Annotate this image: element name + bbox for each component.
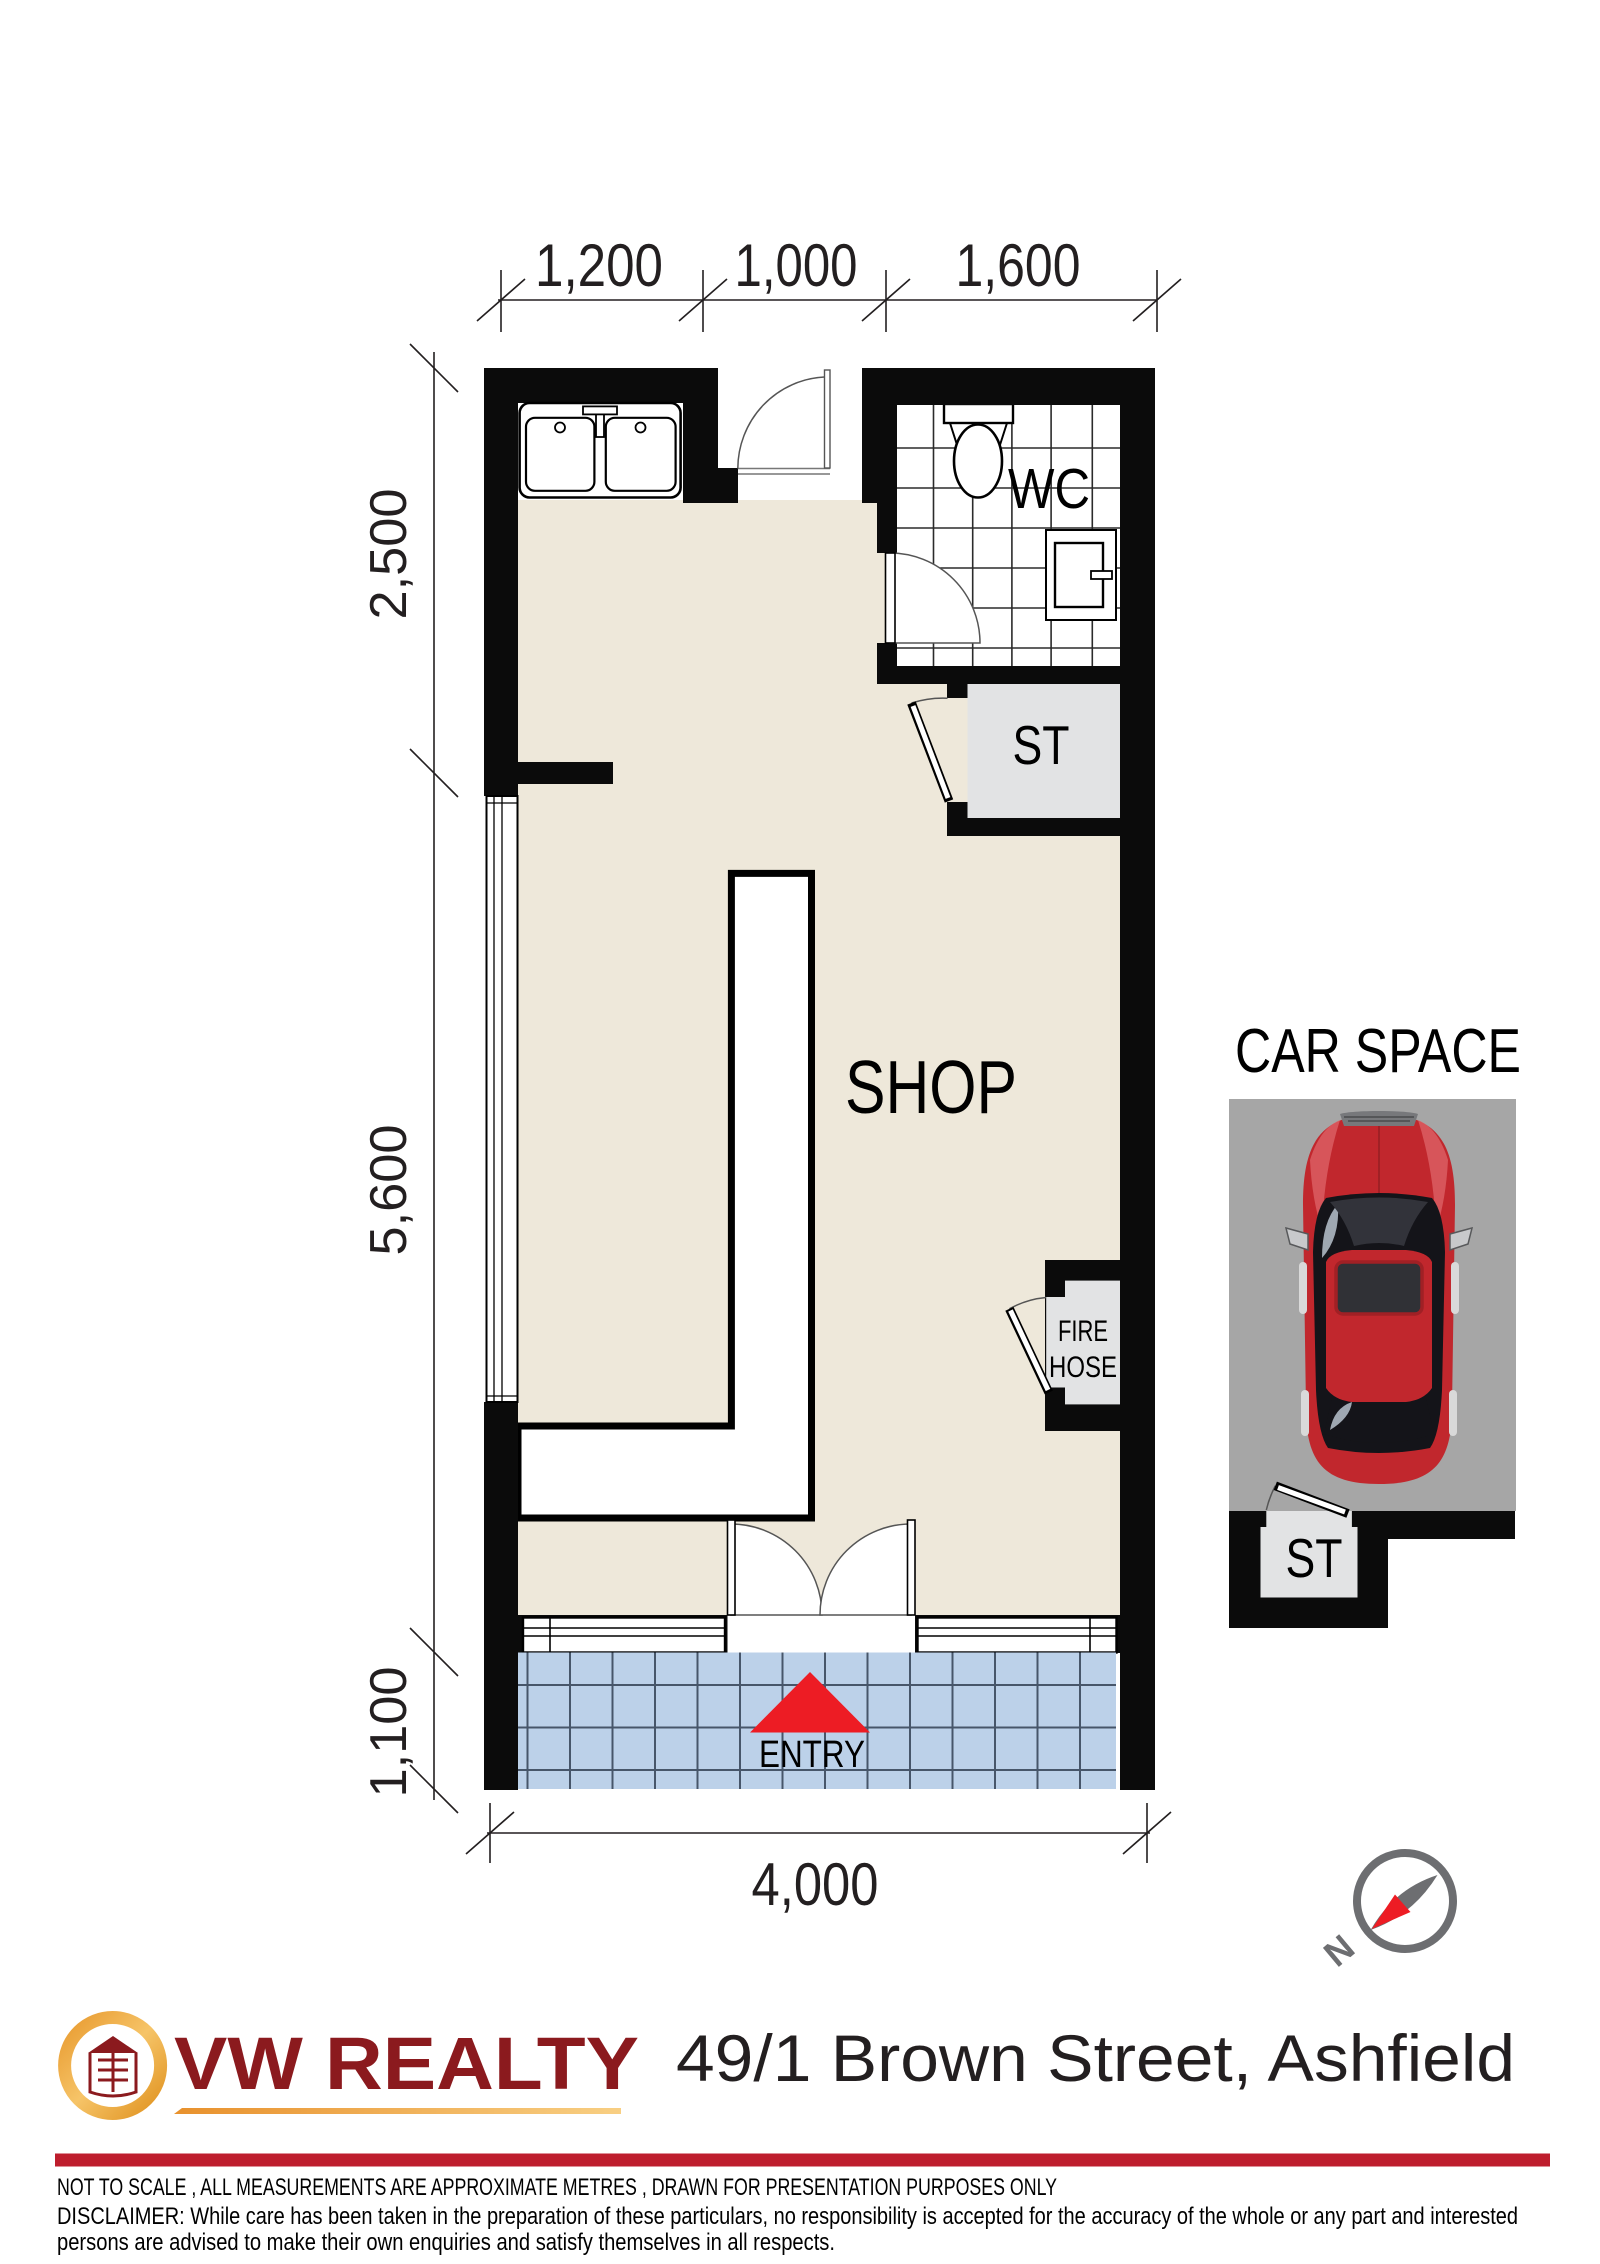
svg-text:CAR SPACE: CAR SPACE xyxy=(1235,1017,1521,1086)
svg-text:1,100: 1,100 xyxy=(360,1667,418,1798)
svg-text:49/1 Brown Street, Ashfield: 49/1 Brown Street, Ashfield xyxy=(676,2021,1515,2095)
svg-text:5,600: 5,600 xyxy=(360,1125,418,1256)
svg-text:ENTRY: ENTRY xyxy=(759,1734,865,1776)
svg-text:WC: WC xyxy=(1008,457,1090,521)
svg-text:DISCLAIMER: While care has be: DISCLAIMER: While care has been taken in… xyxy=(57,2203,1518,2230)
svg-text:1,000: 1,000 xyxy=(735,232,858,299)
svg-text:FIRE: FIRE xyxy=(1058,1315,1108,1348)
svg-text:1,600: 1,600 xyxy=(956,232,1081,299)
svg-text:ST: ST xyxy=(1286,1527,1343,1589)
svg-text:VW REALTY: VW REALTY xyxy=(174,2022,639,2105)
svg-text:NOT TO SCALE , ALL MEASUREMENT: NOT TO SCALE , ALL MEASUREMENTS ARE APPR… xyxy=(57,2174,1057,2201)
svg-text:HOSE: HOSE xyxy=(1049,1351,1117,1384)
svg-text:2,500: 2,500 xyxy=(360,489,418,620)
svg-text:ST: ST xyxy=(1013,714,1070,776)
svg-text:SHOP: SHOP xyxy=(845,1045,1017,1129)
svg-text:1,200: 1,200 xyxy=(535,232,663,299)
svg-text:4,000: 4,000 xyxy=(752,1851,879,1918)
svg-text:persons are advised to make th: persons are advised to make their own en… xyxy=(57,2229,835,2256)
